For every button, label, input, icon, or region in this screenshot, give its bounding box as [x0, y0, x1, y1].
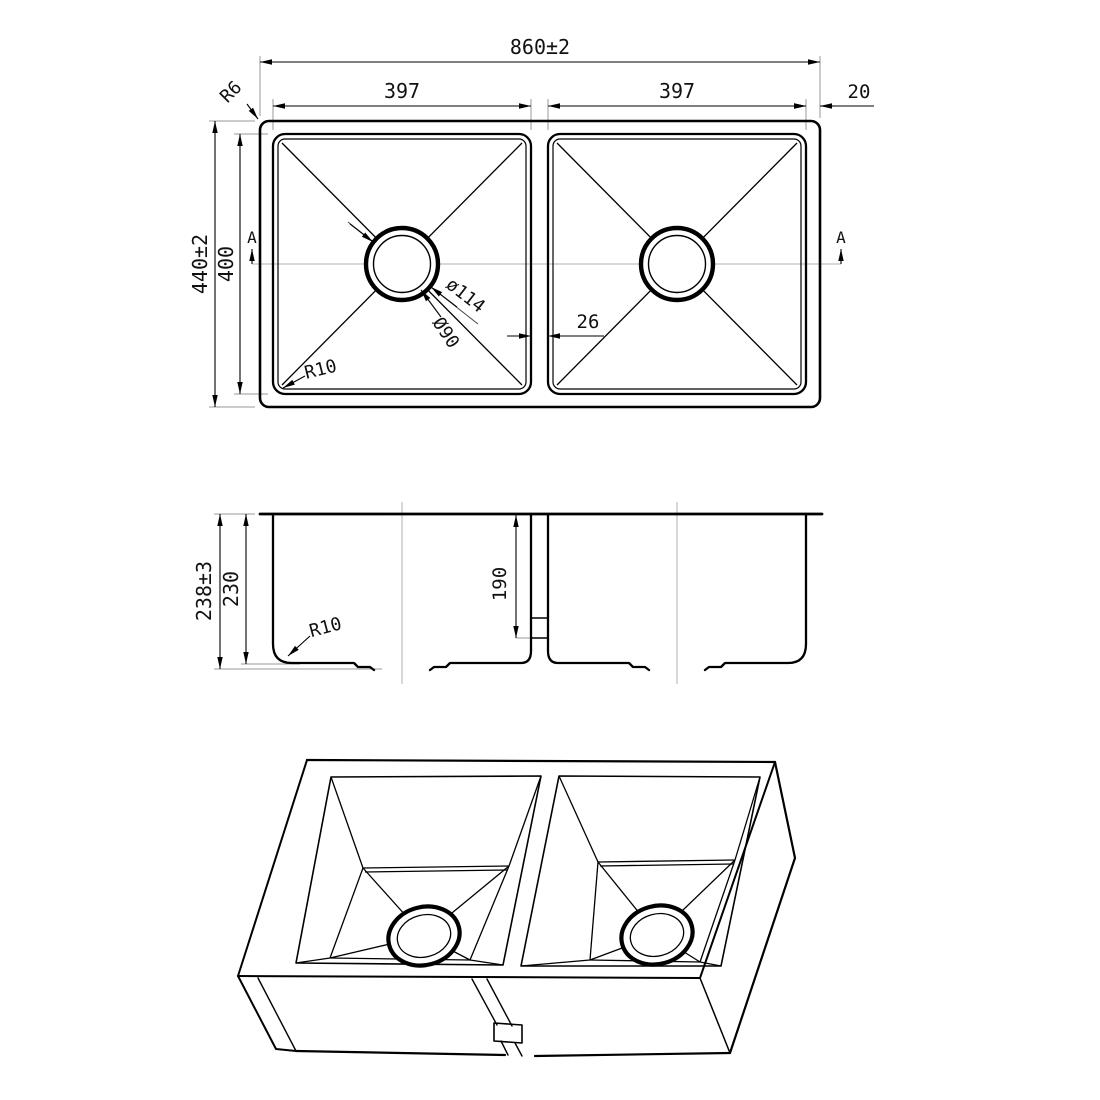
- dim-overall-width: 860±2: [510, 35, 570, 59]
- dim-rim-corner-radius: R6: [216, 77, 246, 107]
- iso-left-bowl: [296, 776, 541, 973]
- sink-technical-drawing: A A 860±2: [0, 0, 1100, 1100]
- section-view: 238±3 230 190 R10: [192, 502, 822, 684]
- centerlines-section: [402, 502, 677, 684]
- dim-overall-height: 238±3: [192, 561, 216, 621]
- dimensions-section-view: 238±3 230 190 R10: [192, 514, 516, 669]
- section-marker-left: A: [247, 228, 257, 247]
- dim-divider-height: 190: [489, 567, 511, 601]
- dim-bowl-inner-height: 230: [219, 571, 243, 607]
- bowl-section-profile: [273, 514, 806, 670]
- dim-right-edge-offset: 20: [848, 81, 871, 103]
- dim-bowl-width-right: 397: [659, 79, 695, 103]
- dim-bowl-depth: 400: [214, 246, 238, 282]
- dim-bottom-corner-radius: R10: [307, 613, 344, 642]
- right-drain-plan: [641, 228, 713, 300]
- iso-right-bowl: [521, 776, 760, 972]
- isometric-view: [238, 760, 795, 1056]
- dim-overall-depth: 440±2: [188, 234, 212, 294]
- dim-drain-hole-dia: Ø90: [428, 314, 464, 353]
- top-view: A A 860±2: [188, 35, 874, 407]
- iso-body: [238, 762, 795, 1056]
- dim-bowl-width-left: 397: [384, 79, 420, 103]
- left-drain-plan: [366, 228, 438, 300]
- dim-divider-width: 26: [577, 311, 600, 333]
- section-marker-right: A: [836, 228, 846, 247]
- drawing-sheet: A A 860±2: [0, 0, 1100, 1100]
- section-cut-line: A A: [247, 228, 846, 264]
- iso-left-drain: [382, 899, 467, 974]
- extension-lines: [209, 56, 820, 407]
